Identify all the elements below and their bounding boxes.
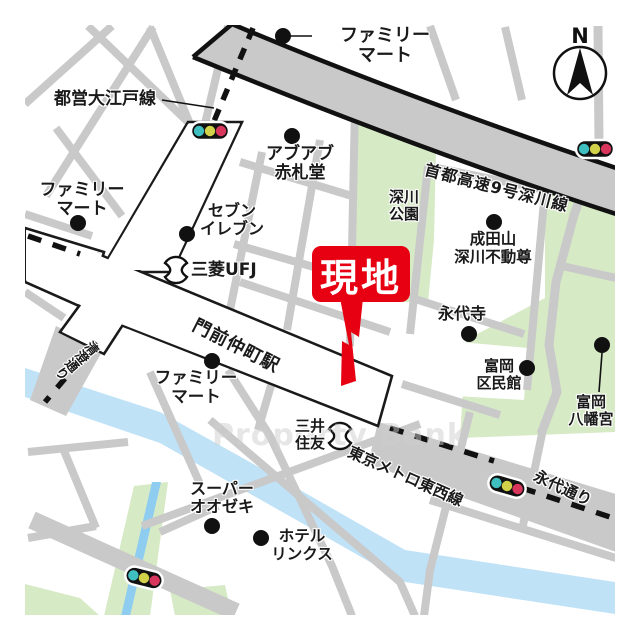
corner-green xyxy=(25,584,100,616)
label-familymart-south: ファミリー マート xyxy=(148,369,244,406)
label-tomioka-kuminkan: 富岡 区民館 xyxy=(468,358,530,392)
label-seven-eleven: セブン イレブン xyxy=(192,202,272,238)
traffic-light-icon xyxy=(191,122,229,140)
label-mitsubishi-ufj: 三菱UFJ xyxy=(191,261,257,280)
compass-icon xyxy=(554,47,606,99)
label-super-ozeki: スーパー オオゼキ xyxy=(183,480,261,516)
label-fukagawa-park: 深川 公園 xyxy=(381,189,427,223)
site-marker: 現地 xyxy=(312,246,410,302)
poi-dot xyxy=(204,518,220,534)
poi-dot xyxy=(284,128,300,144)
map-canvas: 都営大江戸線 ファミリー マート アブアブ 赤札堂 ファミリー マート セブン … xyxy=(0,0,640,640)
poi-dot xyxy=(204,353,220,369)
label-abuabu: アブアブ 赤札堂 xyxy=(248,145,352,183)
compass-north-label: N xyxy=(564,24,596,48)
poi-dot xyxy=(275,28,291,44)
label-familymart-north: ファミリー マート xyxy=(312,26,458,67)
label-hotel-links: ホテル リンクス xyxy=(266,528,338,563)
label-familymart-west: ファミリー マート xyxy=(26,181,138,219)
label-oedo-line: 都営大江戸線 xyxy=(54,90,156,109)
label-eitai-ji: 永代寺 xyxy=(438,305,486,323)
traffic-light-icon xyxy=(576,140,614,158)
poi-dot xyxy=(486,214,502,230)
label-tomioka-hachimangu: 富岡 八幡宮 xyxy=(560,394,622,428)
poi-dot xyxy=(594,337,610,353)
label-mitsui-sumitomo: 三井 住友 xyxy=(290,418,330,452)
poi-dot xyxy=(461,326,477,342)
label-narita-san: 成田山 深川不動尊 xyxy=(444,231,542,266)
